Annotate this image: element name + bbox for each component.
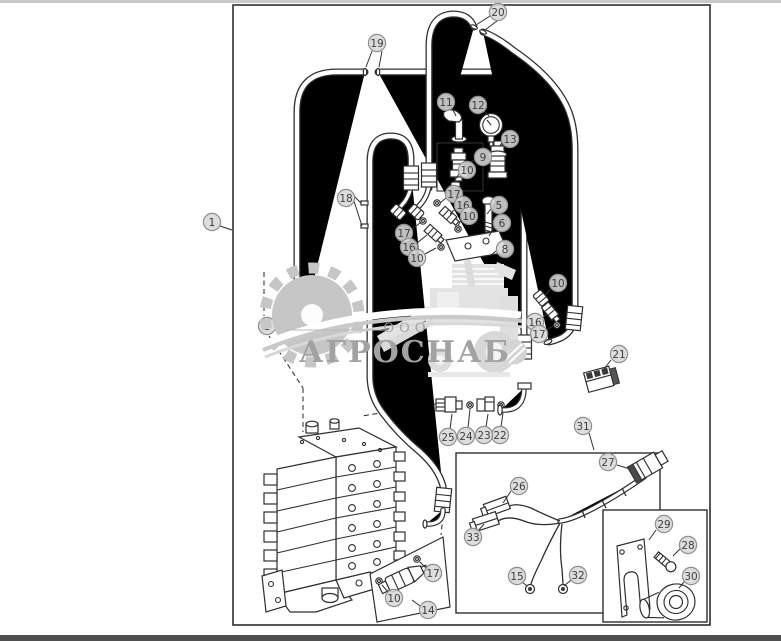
callout-number: 28 [681, 540, 694, 552]
callout-number: 10 [551, 278, 564, 290]
callout-22: 22 [491, 413, 508, 444]
callout-number: 6 [499, 218, 506, 230]
callout-20: 20 [476, 3, 507, 30]
callout-number: 14 [421, 605, 435, 617]
callout-number: 21 [612, 349, 625, 361]
callout-number: 30 [684, 571, 697, 583]
callout-10: 10 [408, 248, 436, 267]
adapter-chain-b [420, 218, 446, 250]
oring-24 [467, 402, 473, 408]
ring-terminal-32 [559, 585, 568, 594]
callout-number: 25 [441, 432, 454, 444]
callout-number: 19 [370, 38, 383, 50]
callout-number: 33 [466, 532, 479, 544]
callout-1: 1 [203, 213, 232, 230]
callout-number: 27 [601, 457, 614, 469]
callout-number: 17 [532, 329, 545, 341]
crimp-collar [404, 166, 419, 190]
callout-number: 11 [439, 97, 452, 109]
callout-number: 10 [462, 211, 475, 223]
callout-number: 10 [410, 253, 423, 265]
callout-number: 12 [471, 100, 484, 112]
callout-number: 18 [339, 193, 352, 205]
fitting-23 [477, 397, 494, 411]
callout-number: 32 [571, 570, 584, 582]
callout-31: 31 [574, 417, 594, 450]
bottom-strip [0, 635, 781, 641]
callout-25: 25 [439, 414, 456, 446]
callout-number: 15 [510, 571, 523, 583]
callout-leader [589, 433, 594, 450]
top-strip [0, 0, 781, 3]
crimp-collar [565, 305, 582, 330]
callout-leader [486, 414, 488, 427]
callout-leader [476, 16, 490, 25]
callout-leader [366, 51, 372, 67]
callout-number: 8 [502, 244, 509, 256]
fitting-25 [436, 397, 462, 412]
callout-number: 22 [493, 430, 506, 442]
watermark-org-form: ООО [384, 321, 431, 336]
callout-number: 17 [426, 568, 439, 580]
callout-leader [417, 235, 427, 243]
callout-number: 9 [480, 152, 487, 164]
oring-17 [414, 556, 420, 562]
callout-number: 10 [387, 593, 400, 605]
elbow-22 [498, 383, 531, 415]
callout-leader [450, 414, 452, 429]
callout-number: 26 [512, 481, 526, 493]
callout-number: 10 [460, 165, 473, 177]
callout-number: 5 [496, 200, 503, 212]
callout-18: 18 [337, 189, 362, 226]
callout-23: 23 [475, 414, 492, 444]
callout-leader [440, 198, 446, 203]
parts-diagram-page: 2 [0, 0, 781, 641]
callout-number: 1 [209, 217, 216, 229]
valve-left-fins [264, 474, 277, 580]
oring-10 [376, 578, 382, 584]
callout-leader [485, 21, 497, 30]
callout-leader [425, 248, 436, 254]
callout-leader [379, 51, 382, 67]
callout-13: 13 [500, 130, 519, 147]
callout-number: 13 [503, 134, 516, 146]
hose-elbow-lower [423, 510, 443, 528]
callout-number: 24 [459, 431, 473, 443]
callout-number: 31 [576, 421, 589, 433]
connector-21 [584, 365, 620, 393]
callout-leader [220, 226, 232, 230]
callout-21: 21 [604, 345, 628, 369]
callout-19: 19 [366, 34, 386, 67]
fitting-row [436, 383, 531, 415]
crimp-collar [422, 163, 437, 187]
callout-number: 23 [477, 430, 490, 442]
callout-24: 24 [457, 409, 474, 445]
hose-clamp-mark [361, 201, 368, 205]
parts-diagram-canvas: 2 [0, 0, 781, 641]
callout-number: 29 [657, 519, 670, 531]
watermark-org-name: АГРОСНАБ [299, 335, 511, 370]
callout-number: 20 [491, 7, 504, 19]
callout-leader [468, 409, 470, 428]
